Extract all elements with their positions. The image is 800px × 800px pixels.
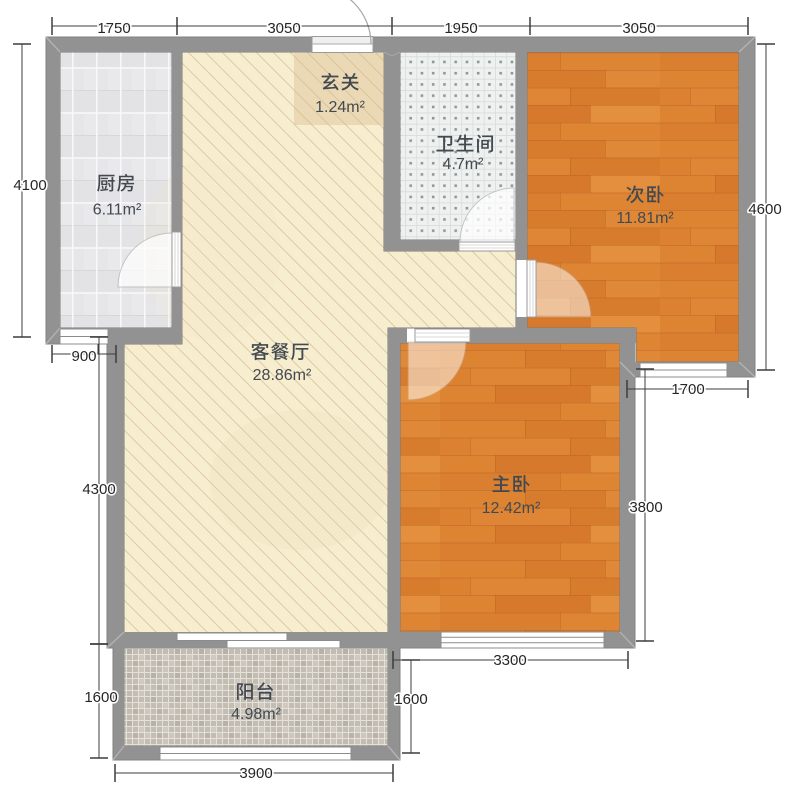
svg-text:4.7m²: 4.7m² bbox=[443, 156, 485, 173]
svg-text:11.81m²: 11.81m² bbox=[616, 210, 674, 227]
svg-text:3300: 3300 bbox=[493, 652, 526, 669]
svg-text:3050: 3050 bbox=[622, 20, 655, 37]
svg-text:3800: 3800 bbox=[629, 499, 662, 516]
svg-text:1600: 1600 bbox=[84, 689, 117, 706]
svg-text:4100: 4100 bbox=[13, 177, 46, 194]
svg-text:1700: 1700 bbox=[671, 381, 704, 398]
svg-text:1.24m²: 1.24m² bbox=[315, 99, 365, 116]
svg-text:28.86m²: 28.86m² bbox=[253, 367, 312, 384]
svg-text:900: 900 bbox=[71, 348, 96, 365]
svg-text:12.42m²: 12.42m² bbox=[482, 500, 541, 517]
svg-text:1950: 1950 bbox=[444, 20, 477, 37]
svg-text:3900: 3900 bbox=[239, 765, 272, 782]
svg-text:4600: 4600 bbox=[748, 201, 781, 218]
svg-text:4300: 4300 bbox=[82, 481, 115, 498]
svg-text:3050: 3050 bbox=[267, 20, 300, 37]
svg-text:6.11m²: 6.11m² bbox=[93, 202, 142, 219]
svg-text:1600: 1600 bbox=[394, 691, 427, 708]
svg-text:1750: 1750 bbox=[97, 20, 130, 37]
svg-text:4.98m²: 4.98m² bbox=[231, 706, 281, 723]
